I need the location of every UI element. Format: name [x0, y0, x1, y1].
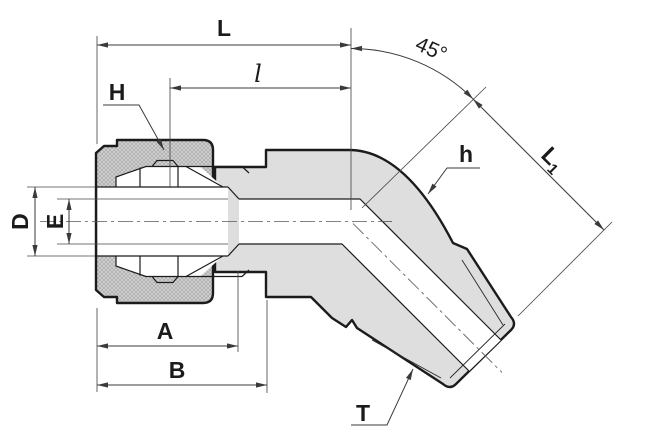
leader-h: h: [428, 141, 480, 194]
leader-h-line: [428, 168, 480, 194]
dim-E-label: E: [42, 214, 68, 229]
technical-drawing-canvas: L l 45° L1 D E: [0, 0, 656, 438]
dim-D-label: D: [7, 213, 33, 230]
dim-l-label: l: [254, 60, 262, 88]
fitting-dimension-drawing: L l 45° L1 D E: [0, 0, 656, 438]
dim-angle-45: 45°: [351, 33, 473, 100]
dim-L1-line: [473, 99, 604, 230]
leader-T: T: [351, 369, 413, 426]
fitting-geometry: [40, 140, 514, 387]
dim-angle-arc: [351, 49, 473, 100]
leader-h-label: h: [459, 141, 473, 167]
leader-H-label: H: [109, 79, 126, 105]
dim-L1-label: L1: [533, 141, 570, 178]
dim-B-label: B: [169, 357, 186, 383]
leader-T-label: T: [356, 400, 370, 426]
dim-L1-extension-lower: [518, 222, 612, 316]
dim-L-label: L: [217, 15, 231, 41]
dim-A-label: A: [157, 318, 174, 344]
